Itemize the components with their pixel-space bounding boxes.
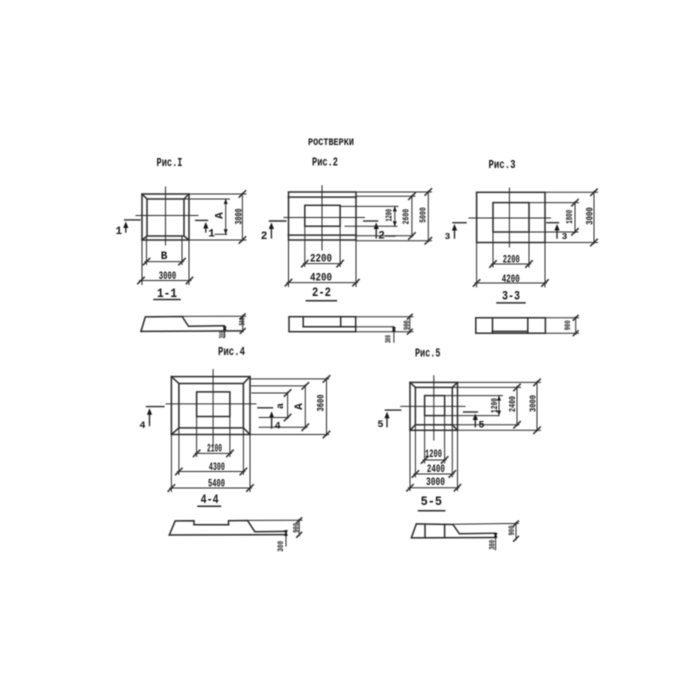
svg-text:1: 1 [208, 229, 215, 241]
svg-text:3000: 3000 [233, 208, 245, 224]
svg-text:3000: 3000 [528, 395, 539, 412]
svg-text:2: 2 [261, 231, 268, 243]
svg-text:900: 900 [291, 523, 301, 533]
svg-text:1: 1 [115, 226, 122, 238]
svg-text:A: A [294, 403, 306, 410]
svg-text:2400: 2400 [427, 464, 445, 476]
svg-text:Рис.2: Рис.2 [312, 156, 338, 170]
svg-text:4: 4 [139, 421, 145, 432]
svg-text:5-5: 5-5 [421, 494, 443, 509]
svg-text:900: 900 [507, 525, 517, 535]
svg-text:B: B [161, 251, 168, 263]
svg-text:300: 300 [488, 540, 498, 550]
svg-text:5: 5 [377, 420, 383, 431]
svg-text:3: 3 [562, 231, 568, 242]
svg-text:1200: 1200 [489, 398, 500, 413]
svg-text:Рис.4: Рис.4 [218, 345, 245, 359]
svg-text:300: 300 [218, 331, 227, 338]
svg-text:3000: 3000 [584, 207, 596, 225]
svg-text:3000: 3000 [426, 477, 445, 489]
svg-text:2200: 2200 [310, 254, 332, 266]
svg-text:1200: 1200 [384, 209, 394, 222]
svg-text:4300: 4300 [209, 462, 225, 474]
svg-text:500: 500 [238, 317, 247, 325]
svg-text:300: 300 [276, 541, 286, 552]
svg-text:2200: 2200 [503, 255, 520, 267]
svg-text:900: 900 [563, 320, 573, 330]
svg-text:2600: 2600 [400, 209, 411, 225]
svg-text:900: 900 [402, 320, 412, 330]
svg-text:a: a [276, 403, 287, 409]
svg-text:300: 300 [384, 335, 394, 343]
svg-text:4-4: 4-4 [201, 492, 219, 507]
svg-text:A: A [215, 212, 227, 219]
svg-text:Рис.5: Рис.5 [415, 347, 441, 361]
svg-text:3000: 3000 [159, 271, 177, 283]
svg-text:3600: 3600 [316, 395, 328, 412]
svg-text:РОСТВЕРКИ: РОСТВЕРКИ [308, 137, 354, 149]
svg-text:4200: 4200 [310, 273, 332, 285]
svg-text:2-2: 2-2 [312, 285, 331, 300]
svg-text:Рис.I: Рис.I [157, 156, 183, 170]
svg-text:5000: 5000 [418, 207, 429, 223]
svg-text:2400: 2400 [507, 396, 518, 412]
svg-text:4200: 4200 [502, 274, 520, 286]
svg-text:1200: 1200 [425, 449, 442, 461]
svg-text:5400: 5400 [208, 479, 225, 491]
svg-text:3: 3 [445, 231, 451, 242]
svg-text:1800: 1800 [564, 210, 575, 224]
svg-text:3-3: 3-3 [502, 289, 520, 304]
svg-text:Рис.3: Рис.3 [489, 158, 516, 172]
svg-text:2100: 2100 [207, 443, 222, 455]
